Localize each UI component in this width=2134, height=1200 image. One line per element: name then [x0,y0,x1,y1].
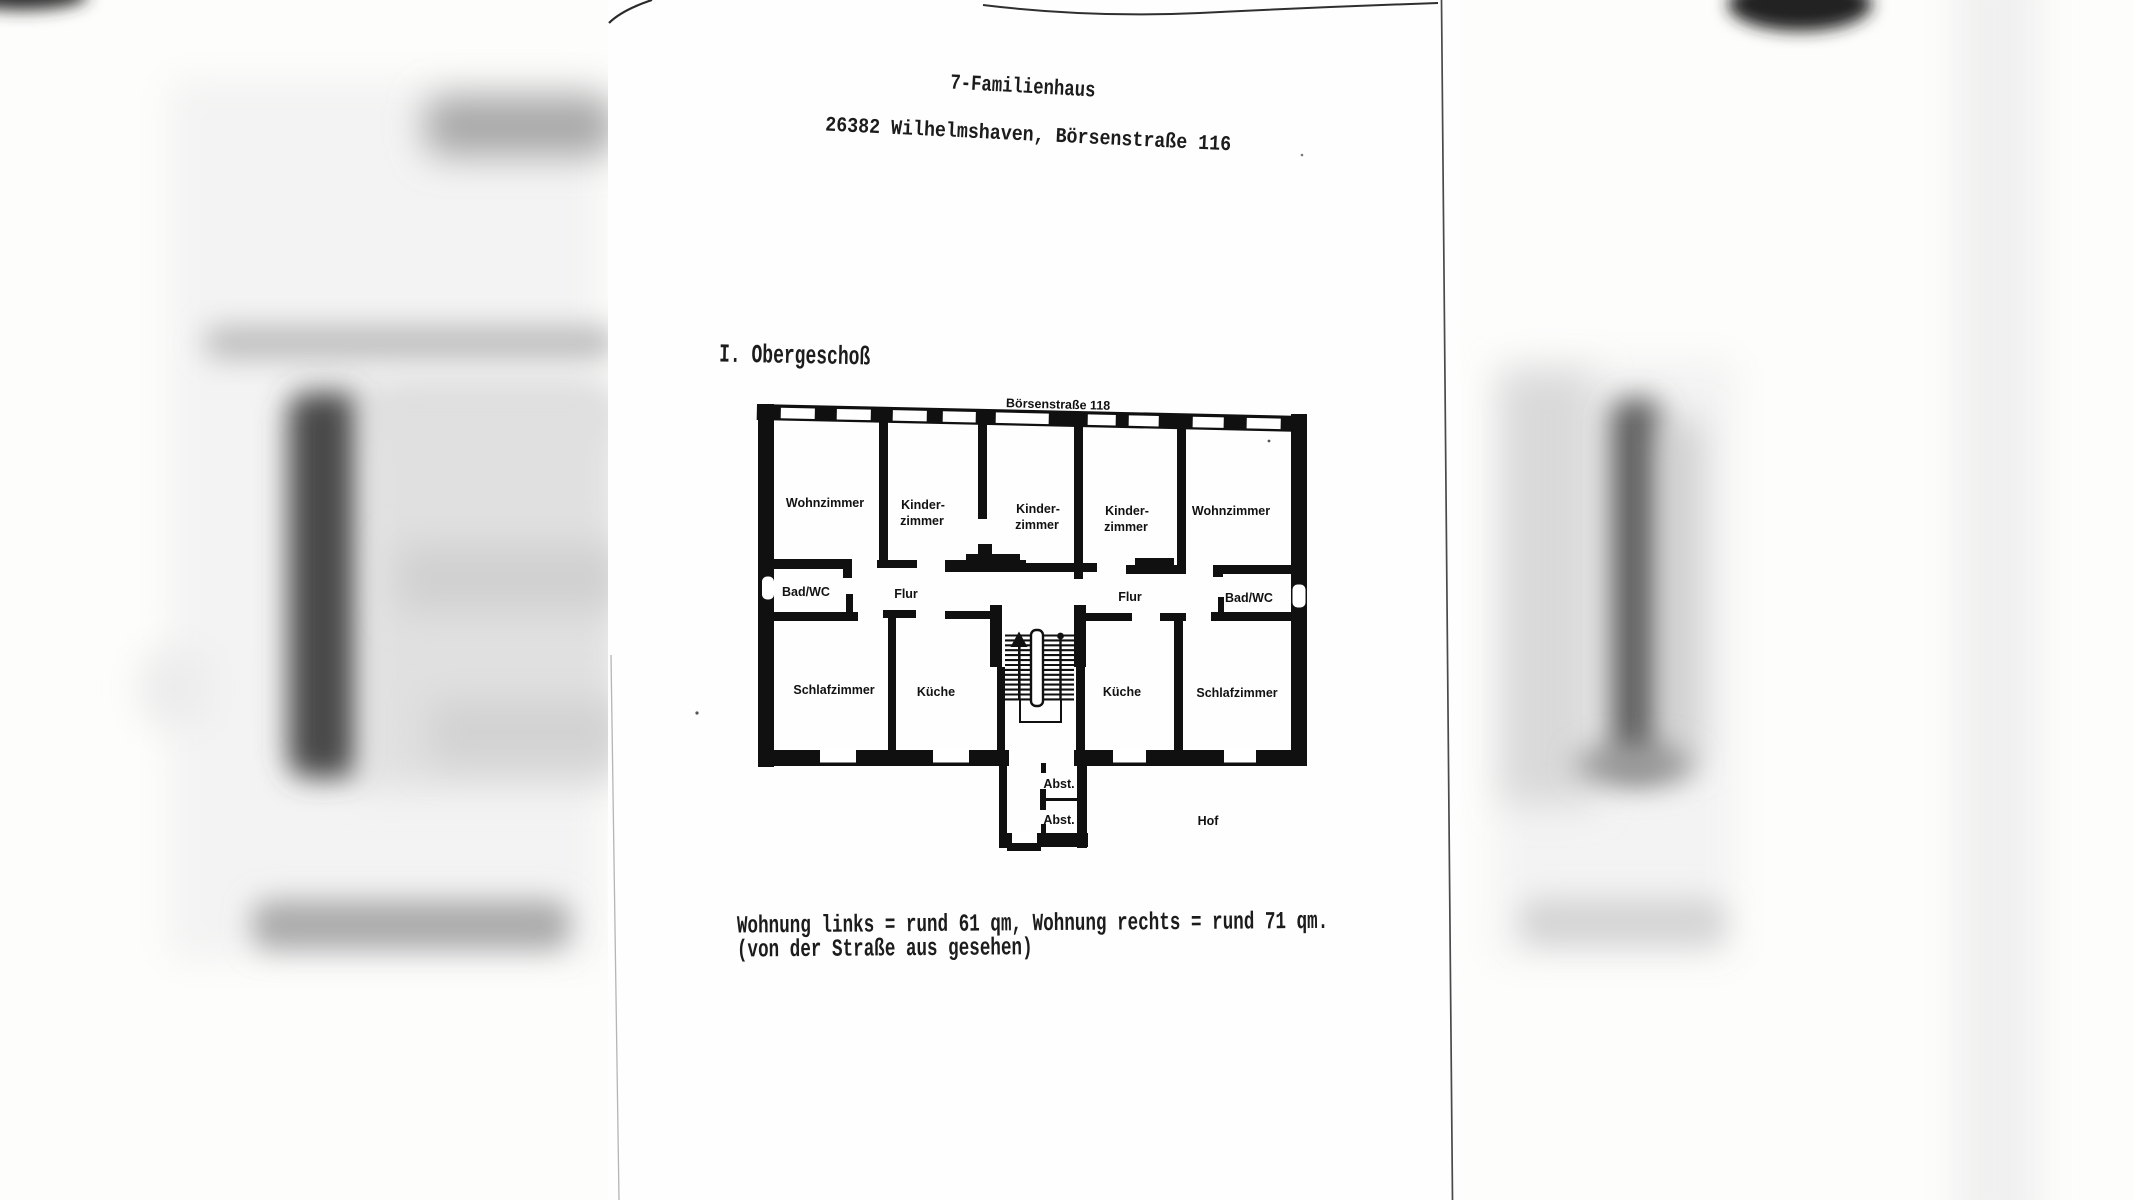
svg-text:I. Obergeschoß: I. Obergeschoß [719,339,871,372]
svg-text:(von der Straße aus gesehen): (von der Straße aus gesehen) [737,935,1033,965]
svg-text:Küche: Küche [1103,685,1141,699]
svg-text:Wohnzimmer: Wohnzimmer [1192,504,1270,518]
svg-text:Flur: Flur [894,587,918,601]
svg-text:Hof: Hof [1198,814,1220,828]
svg-text:Schlafzimmer: Schlafzimmer [1196,686,1277,700]
svg-text:zimmer: zimmer [1015,518,1059,532]
svg-text:zimmer: zimmer [1104,520,1148,534]
svg-text:Küche: Küche [917,685,955,699]
svg-text:zimmer: zimmer [900,514,944,528]
svg-text:Abst.: Abst. [1043,813,1074,827]
svg-text:Schlafzimmer: Schlafzimmer [793,683,874,697]
svg-text:Kinder-: Kinder- [1105,504,1149,518]
svg-text:Kinder-: Kinder- [901,498,945,512]
svg-text:Wohnzimmer: Wohnzimmer [786,496,864,510]
svg-text:Abst.: Abst. [1043,777,1074,791]
svg-text:Bad/WC: Bad/WC [782,585,830,599]
svg-text:Bad/WC: Bad/WC [1225,591,1273,605]
svg-text:Kinder-: Kinder- [1016,502,1060,516]
svg-text:Flur: Flur [1118,590,1142,604]
